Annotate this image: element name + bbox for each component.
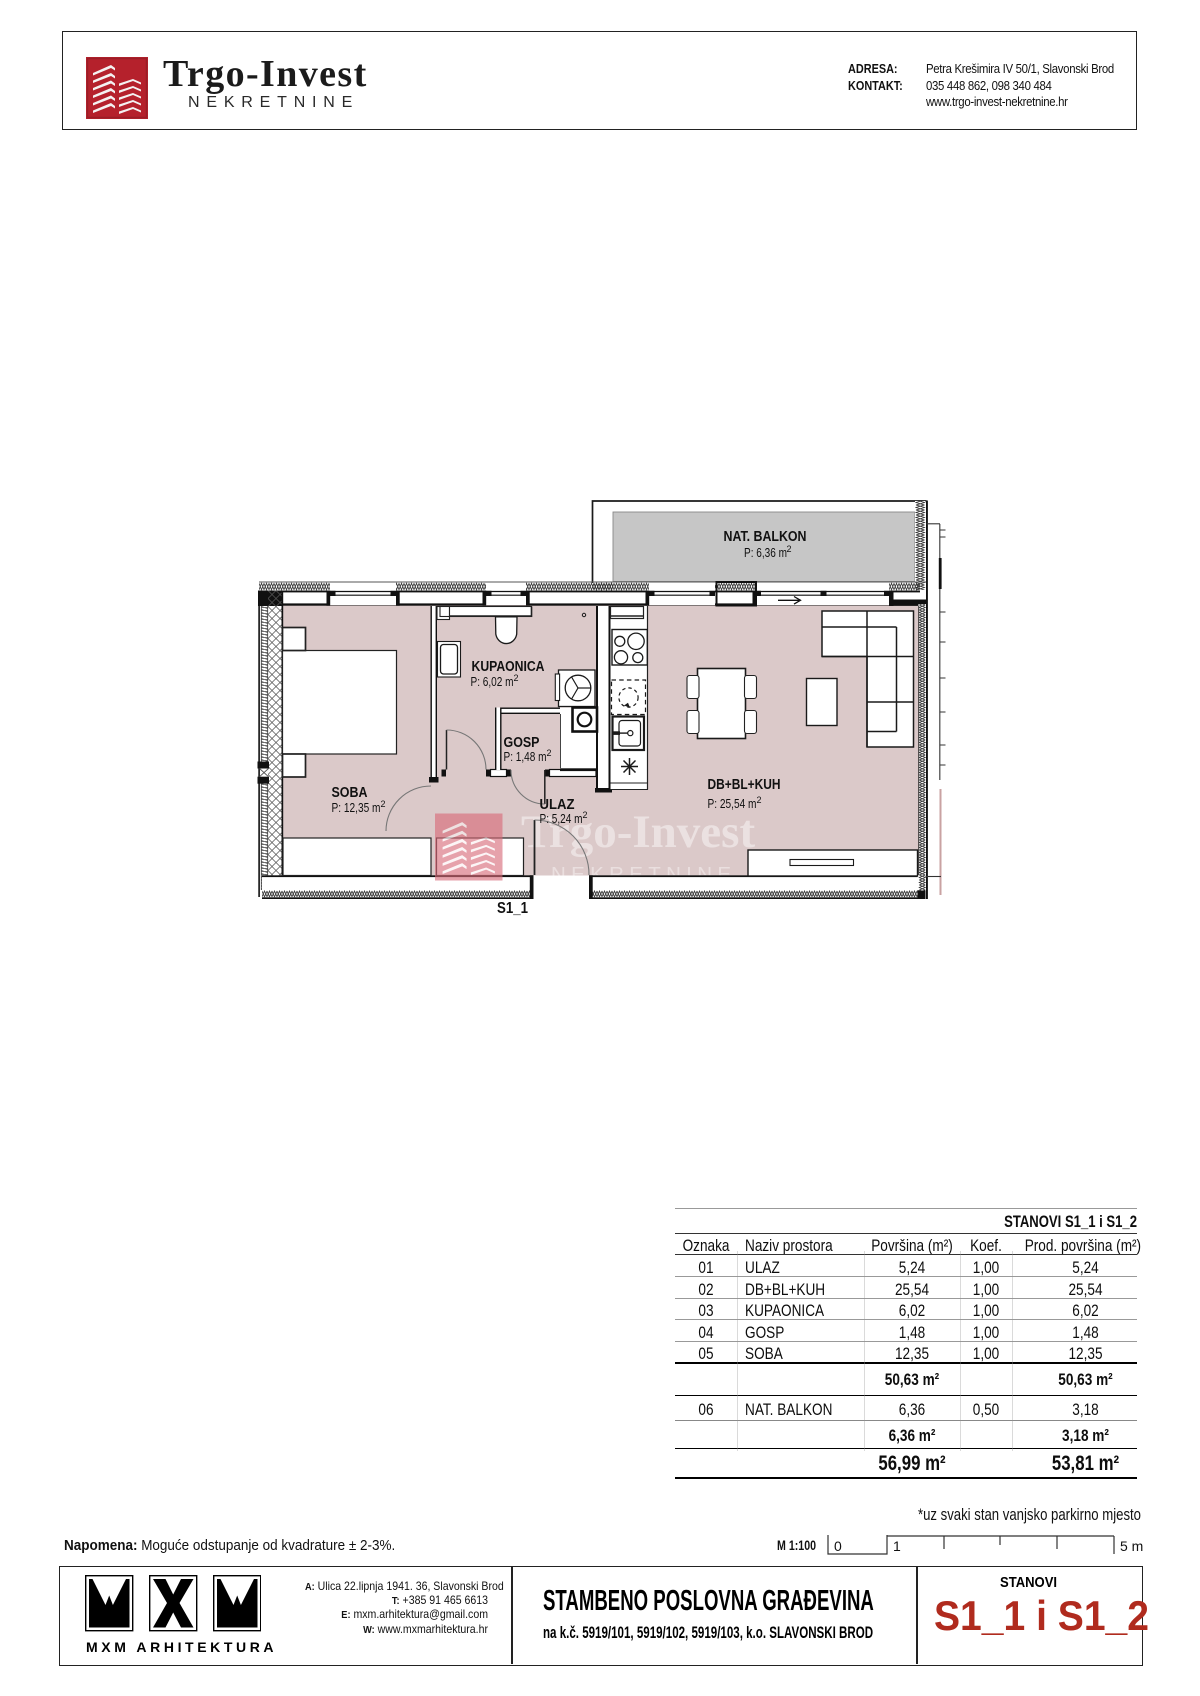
svg-text:KUPAONICA: KUPAONICA — [472, 659, 545, 675]
svg-text:0: 0 — [834, 1538, 842, 1554]
svg-text:P: 6,02 m: P: 6,02 m — [471, 674, 514, 689]
svg-text:1: 1 — [893, 1538, 901, 1554]
svg-text:NAT. BALKON: NAT. BALKON — [724, 529, 807, 545]
svg-text:P: 25,54 m: P: 25,54 m — [708, 796, 757, 811]
svg-text:P: 1,48 m: P: 1,48 m — [504, 749, 547, 764]
svg-text:2: 2 — [547, 748, 552, 758]
svg-text:2: 2 — [787, 544, 792, 554]
svg-text:DB+BL+KUH: DB+BL+KUH — [708, 777, 781, 793]
svg-text:P: 5,24 m: P: 5,24 m — [540, 811, 583, 826]
svg-text:S1_1: S1_1 — [497, 900, 528, 917]
svg-text:2: 2 — [583, 810, 588, 820]
svg-text:5 m: 5 m — [1120, 1538, 1143, 1554]
svg-text:P: 6,36 m: P: 6,36 m — [744, 545, 787, 560]
svg-text:2: 2 — [514, 673, 519, 683]
svg-text:SOBA: SOBA — [332, 785, 368, 801]
svg-text:2: 2 — [757, 795, 762, 805]
svg-text:2: 2 — [381, 799, 386, 809]
svg-text:P: 12,35 m: P: 12,35 m — [332, 800, 381, 815]
